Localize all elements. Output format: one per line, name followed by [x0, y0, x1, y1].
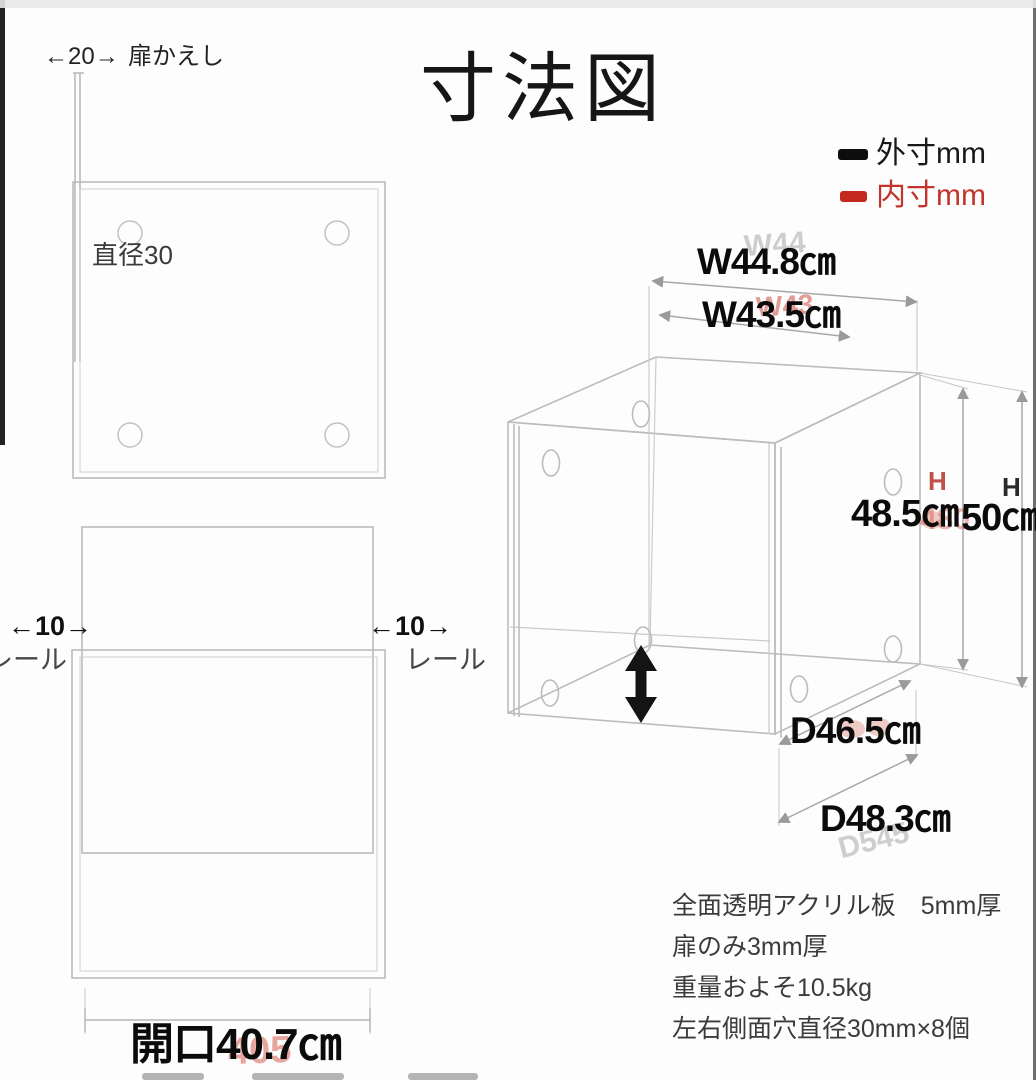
height-outer-dim-label: 50㎝	[961, 499, 1036, 539]
height-inner-dim-label: 48.5㎝	[851, 495, 958, 535]
vertical-adjust-arrow-icon	[625, 645, 657, 723]
dimension-diagram: 寸法図 外寸mm 内寸mm ←20→ 扉かえし 直径30 ←10→ ←10→ レ…	[0, 0, 1036, 1080]
depth-outer-dim-label: D48.3㎝	[820, 800, 950, 839]
note-door-thickness: 扉のみ3mm厚	[672, 934, 828, 960]
rail-dim-left: ←10→	[8, 612, 92, 640]
legend-outer-dash-icon	[838, 149, 868, 160]
hole-diameter-label: 直径30	[92, 242, 173, 269]
rail-dim-right: ←10→	[368, 612, 452, 640]
left-edge-strip	[0, 0, 5, 445]
depth-inner-dim-label: D46.5㎝	[790, 712, 920, 751]
rail-label-right: レール	[405, 646, 486, 674]
width-outer-dim-label: W44.8㎝	[697, 243, 835, 282]
note-side-holes: 左右側面穴直径30mm×8個	[672, 1016, 970, 1042]
page-title: 寸法図	[420, 50, 666, 130]
rail-label-left: レール	[0, 646, 67, 674]
red-remnant-blobs	[839, 511, 943, 738]
door-return-label: 扉かえし	[128, 44, 224, 69]
height-inner-h-mark: H	[928, 468, 947, 495]
width-inner-dim-label: W43.5㎝	[702, 296, 840, 335]
door-return-dim-label: ←20→	[44, 44, 119, 69]
front-view-panel	[72, 527, 385, 1034]
bottom-cutoff-text-remnant	[142, 1073, 478, 1080]
legend-inner-label: 内寸mm	[876, 180, 986, 212]
opening-dim-label: 開口40.7㎝	[130, 1022, 341, 1068]
note-material: 全面透明アクリル板 5mm厚	[672, 893, 1001, 919]
top-edge-strip	[0, 0, 1036, 8]
side-view-panel	[73, 73, 385, 478]
note-weight: 重量およそ10.5kg	[672, 975, 872, 1001]
legend-outer-label: 外寸mm	[876, 138, 986, 170]
legend-inner-dash-icon	[840, 191, 867, 202]
